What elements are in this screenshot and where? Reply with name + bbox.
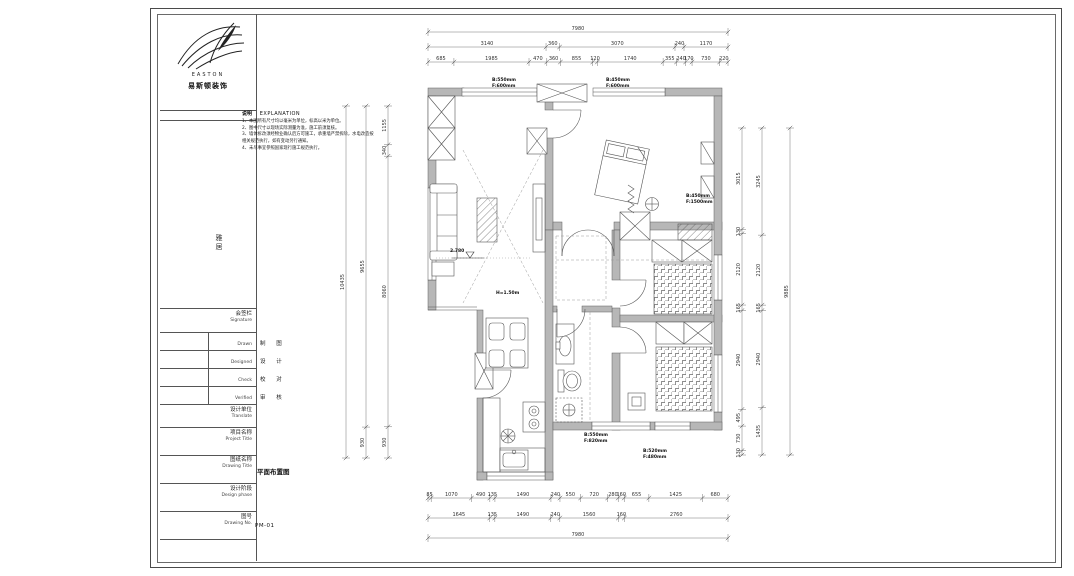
dimension-row: 11553408060930 — [382, 104, 392, 460]
window-annotation: B:550mm F:600mm — [492, 78, 516, 89]
dimension-label: 1070 — [445, 492, 458, 498]
dimension-label: 2760 — [670, 512, 683, 518]
nightstand — [701, 142, 714, 164]
dimension-label: 85 — [426, 492, 432, 498]
dimension-label: 130 — [736, 227, 742, 237]
hatched-areas — [477, 198, 712, 242]
column-box — [527, 128, 547, 154]
wardrobe — [656, 322, 712, 344]
dimension-row: 1645135149024015601602760 — [426, 512, 730, 522]
tv-cabinet — [533, 184, 545, 252]
dimension-label: 165 — [756, 303, 762, 313]
floor-plan: 7980314036030702401170685198547036085512… — [0, 0, 1074, 576]
dimension-label: 550 — [566, 492, 576, 498]
bedside-table-round — [646, 198, 659, 211]
toilet — [558, 370, 581, 392]
dimension-label: 7980 — [572, 532, 585, 538]
dimension-label: 220 — [719, 56, 729, 62]
column-box — [428, 96, 455, 128]
dimension-row: 10435 — [340, 104, 350, 460]
dimension-label: 240 — [675, 41, 685, 47]
dimension-label: 1425 — [669, 492, 682, 498]
dimension-label: 730 — [736, 434, 742, 444]
door-bedroom3 — [620, 327, 646, 353]
dimension-row: 8510704901351490240550720280160655142568… — [426, 492, 730, 502]
dimension-label: 160 — [617, 512, 627, 518]
bathroom — [556, 324, 582, 422]
column-box — [428, 128, 455, 160]
kitchen — [483, 398, 545, 472]
dimension-label: 1645 — [453, 512, 466, 518]
nightstand-bed3 — [628, 393, 645, 410]
dimension-label: 1740 — [624, 56, 637, 62]
dimension-label: 3245 — [756, 175, 762, 188]
chair — [510, 350, 525, 367]
dimension-label: 9885 — [784, 285, 790, 298]
height-annotation: H=1.50m — [496, 291, 519, 297]
floor-drain — [556, 398, 582, 422]
dimension-label: 680 — [710, 492, 720, 498]
dimension-label: 490 — [476, 492, 486, 498]
bed-3 — [656, 347, 712, 411]
dimension-label: 10435 — [340, 274, 346, 290]
dimension-label: 3070 — [611, 41, 624, 47]
dimension-row: 301513021201652940495730130 — [736, 126, 746, 458]
window-annotation: B:550mm F:820mm — [584, 433, 608, 444]
door-master-bedroom — [553, 110, 581, 138]
dimension-label: 720 — [589, 492, 599, 498]
dimension-label: 170 — [684, 56, 694, 62]
dimension-label: 2940 — [756, 353, 762, 366]
dimension-label: 855 — [572, 56, 582, 62]
dimension-label: 135 — [488, 492, 498, 498]
dimension-label: 2120 — [756, 264, 762, 277]
bay-cabinet — [678, 224, 712, 240]
flue-box — [537, 84, 587, 102]
dimension-label: 130 — [736, 448, 742, 458]
door-hall-right — [588, 230, 614, 256]
dimension-label: 9655 — [360, 260, 366, 273]
plant — [501, 429, 515, 443]
counter-west — [483, 398, 500, 472]
dimension-label: 1155 — [382, 119, 388, 132]
window-annotation: B:520mm F:480mm — [643, 449, 667, 460]
dimension-label: 135 — [488, 512, 498, 518]
dimension-label: 360 — [548, 41, 558, 47]
chair — [489, 323, 504, 340]
dimension-row: 7980 — [426, 532, 730, 542]
window-annotation: B:450mm F:1500mm — [686, 194, 713, 205]
dimension-label: 470 — [533, 56, 543, 62]
wardrobe — [652, 240, 712, 262]
dimension-label: 7980 — [572, 26, 585, 32]
dimension-label: 355 — [665, 56, 675, 62]
dining-set — [486, 318, 528, 368]
dimension-label: 340 — [382, 146, 388, 156]
sofa — [430, 184, 457, 276]
door-hall-left — [562, 230, 588, 256]
dimension-row: 9655930 — [360, 104, 370, 460]
dimension-label: 360 — [549, 56, 559, 62]
dimension-label: 655 — [632, 492, 642, 498]
dimension-label: 240 — [551, 512, 561, 518]
dimension-label: 1560 — [583, 512, 596, 518]
dimension-row: 9885 — [784, 126, 794, 457]
master-bed — [595, 140, 650, 204]
bed-2 — [654, 264, 712, 314]
dimension-label: 3140 — [481, 41, 494, 47]
level-annotation: 2.780 — [450, 249, 464, 255]
dimension-label: 160 — [616, 492, 626, 498]
window-annotation: B:450mm F:600mm — [606, 78, 630, 89]
dimension-label: 495 — [736, 413, 742, 423]
dimension-label: 930 — [382, 438, 388, 448]
dimension-label: 1490 — [517, 492, 530, 498]
dimension-label: 8060 — [382, 285, 388, 298]
dimension-label: 3015 — [736, 172, 742, 185]
side-table — [432, 262, 454, 276]
stove — [523, 402, 545, 432]
dimension-label: 240 — [551, 492, 561, 498]
dimension-label: 1490 — [516, 512, 529, 518]
dimension-label: 165 — [736, 303, 742, 313]
dimension-label: 685 — [436, 56, 446, 62]
coffee-table — [477, 198, 497, 242]
sink — [500, 450, 528, 470]
washbasin — [556, 324, 574, 364]
dimension-label: 2120 — [736, 263, 742, 276]
dimension-label: 2940 — [736, 354, 742, 367]
wardrobe — [620, 212, 650, 240]
dimension-label: 1170 — [700, 41, 713, 47]
dimension-label: 730 — [701, 56, 711, 62]
tv — [536, 198, 542, 240]
dimension-label: 120 — [590, 56, 600, 62]
dimension-row: 3245212016529401435 — [756, 126, 766, 457]
chair — [489, 350, 504, 367]
dimension-label: 1435 — [756, 425, 762, 438]
dimension-label: 1985 — [485, 56, 498, 62]
chair — [510, 323, 525, 340]
dimension-row: 314036030702401170 — [426, 41, 730, 51]
door-bedroom2 — [620, 280, 646, 306]
dimension-row: 7980 — [426, 26, 730, 36]
dimension-label: 930 — [360, 438, 366, 448]
dimension-row: 68519854703608551201740355240170730220 — [426, 56, 730, 66]
